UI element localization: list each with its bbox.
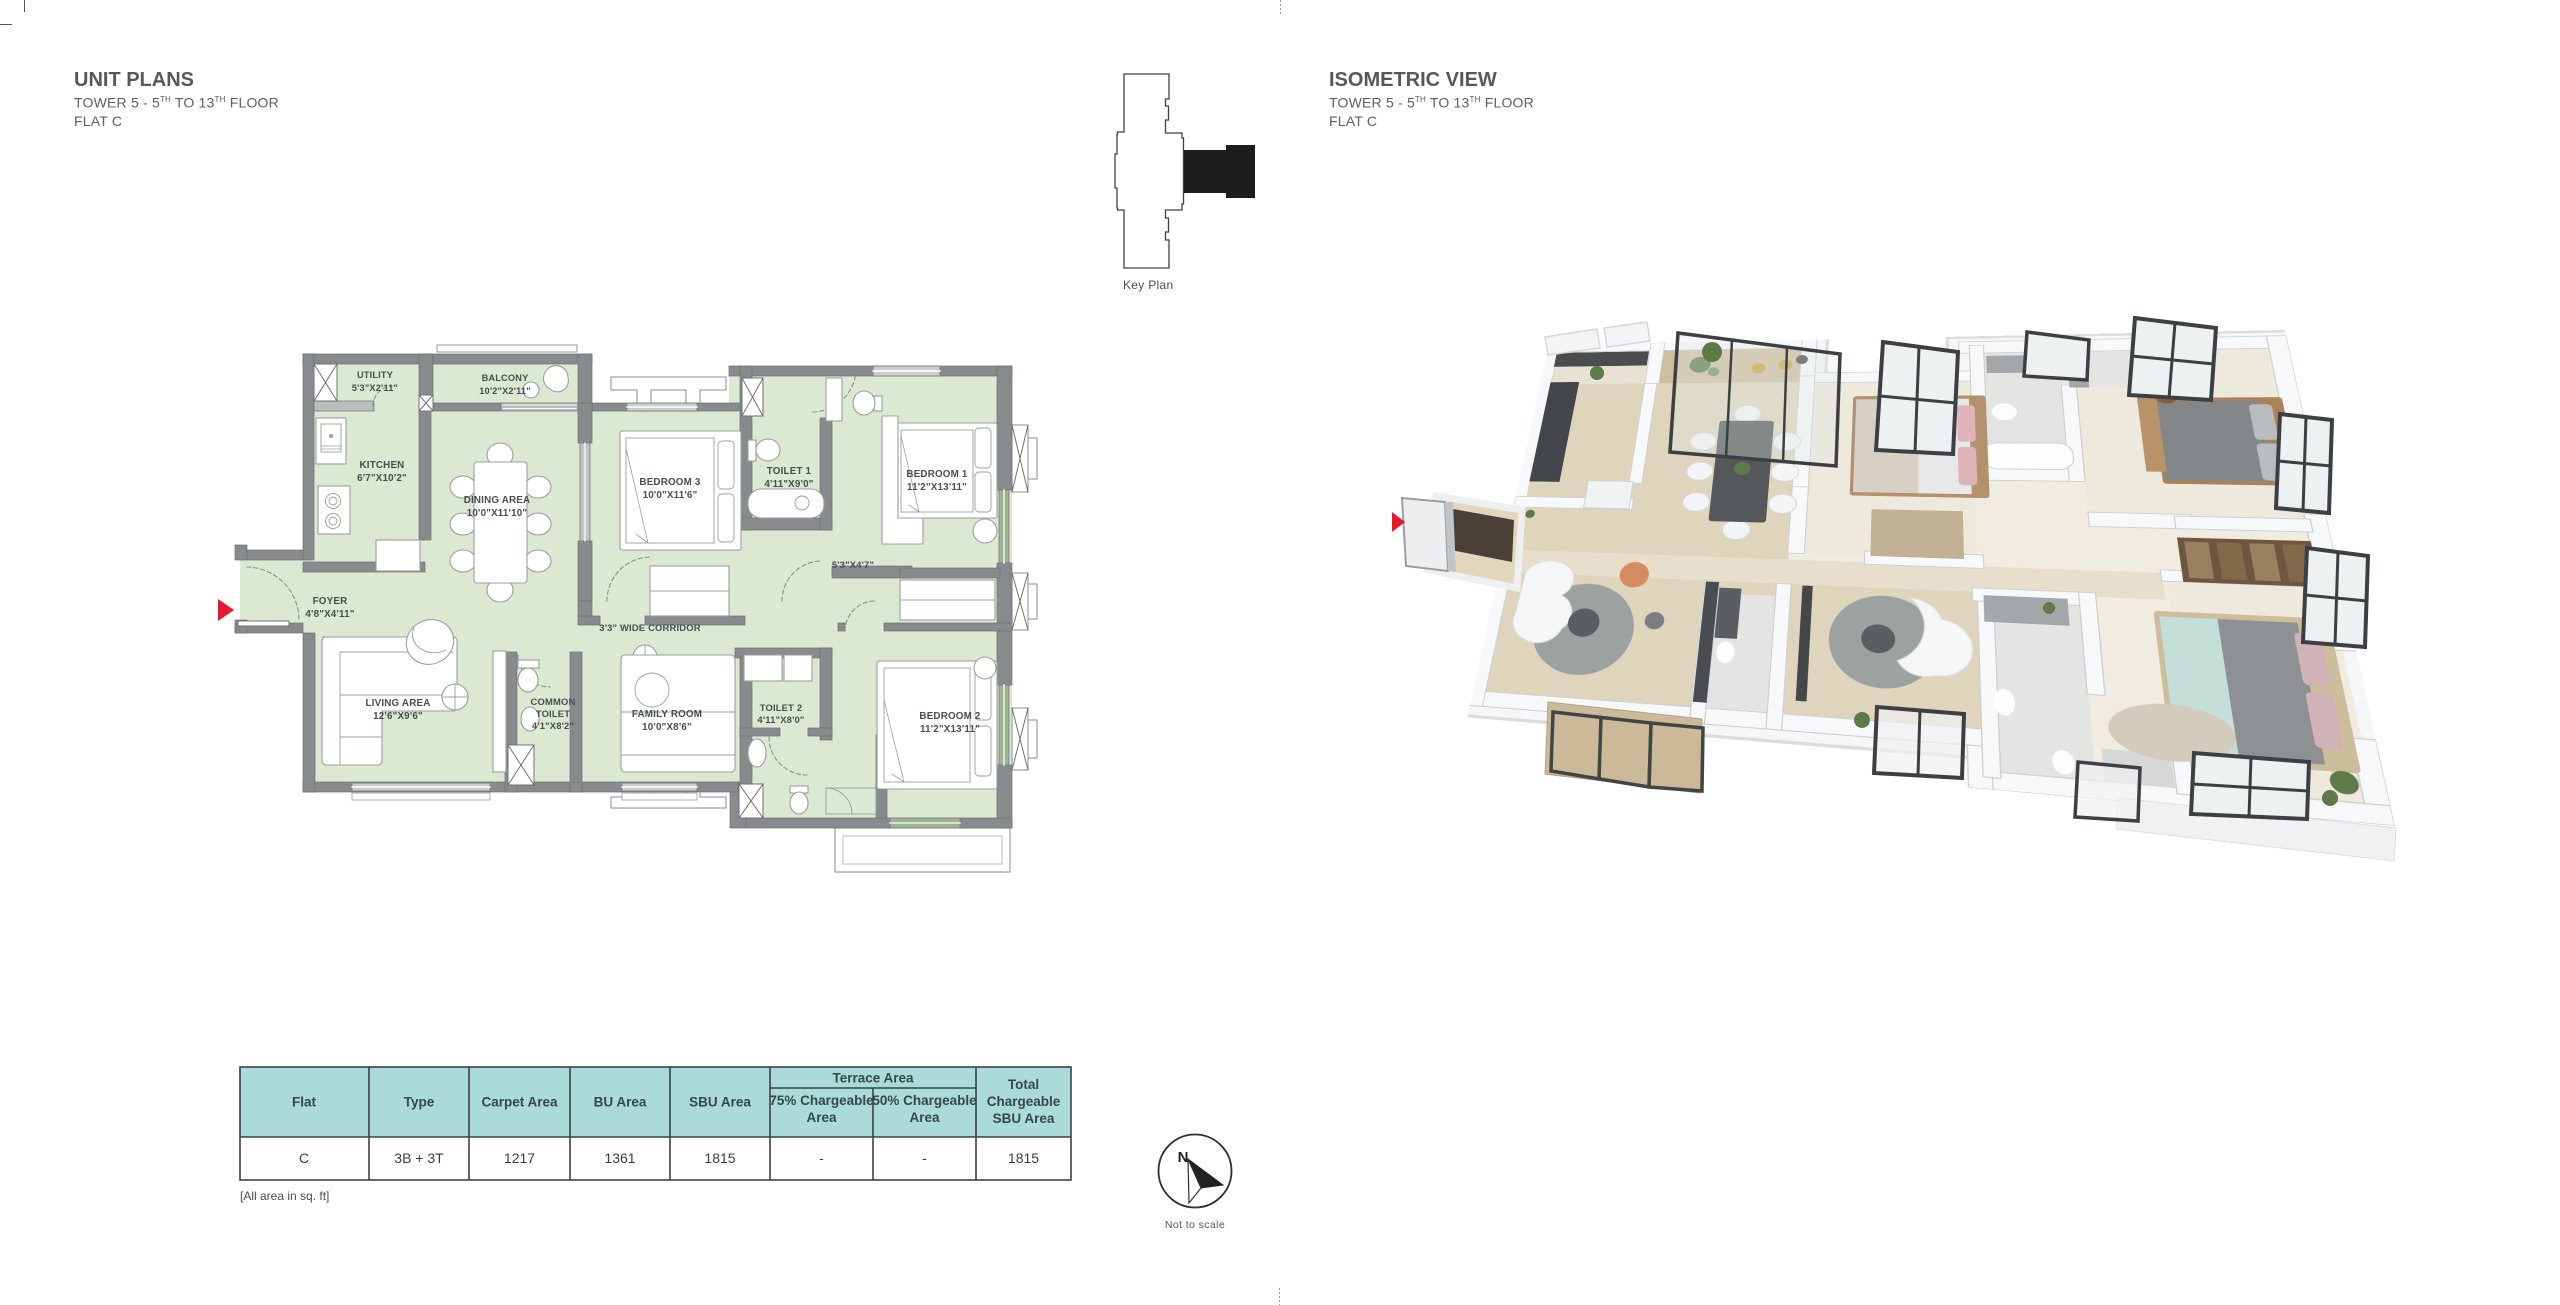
svg-text:11'2"X13'11": 11'2"X13'11": [907, 482, 967, 493]
svg-text:BEDROOM 2: BEDROOM 2: [919, 711, 980, 722]
svg-text:4'8"X4'11": 4'8"X4'11": [305, 609, 354, 620]
svg-text:BALCONY: BALCONY: [482, 373, 529, 383]
svg-text:1815: 1815: [1008, 1150, 1039, 1166]
svg-text:4'11"X9'0": 4'11"X9'0": [764, 479, 813, 490]
svg-text:SBU Area: SBU Area: [993, 1111, 1055, 1126]
svg-text:KITCHEN: KITCHEN: [360, 460, 405, 471]
svg-text:1217: 1217: [504, 1150, 535, 1166]
svg-text:Total: Total: [1008, 1077, 1039, 1092]
svg-text:12'6"X9'6": 12'6"X9'6": [373, 711, 423, 722]
svg-text:LIVING AREA: LIVING AREA: [366, 698, 431, 709]
svg-text:BEDROOM 1: BEDROOM 1: [906, 469, 967, 480]
svg-text:SBU Area: SBU Area: [689, 1095, 751, 1110]
svg-text:1815: 1815: [704, 1150, 735, 1166]
svg-text:4'1"X8'2": 4'1"X8'2": [532, 720, 574, 731]
svg-text:FOYER: FOYER: [313, 596, 348, 607]
svg-text:5'3"X2'11": 5'3"X2'11": [352, 383, 398, 393]
svg-text:DINING AREA: DINING AREA: [464, 495, 531, 506]
svg-text:FAMILY ROOM: FAMILY ROOM: [632, 709, 702, 720]
svg-text:4'11"X8'0": 4'11"X8'0": [757, 714, 804, 725]
svg-text:Area: Area: [909, 1110, 940, 1125]
svg-text:[All area in sq. ft]: [All area in sq. ft]: [240, 1189, 329, 1203]
svg-text:6'7"X10'2": 6'7"X10'2": [357, 473, 407, 484]
svg-text:Key Plan: Key Plan: [1123, 278, 1173, 292]
svg-text:75% Chargeable: 75% Chargeable: [769, 1093, 874, 1108]
svg-text:-: -: [922, 1150, 927, 1166]
svg-text:3B + 3T: 3B + 3T: [394, 1150, 444, 1166]
svg-text:TOILET 1: TOILET 1: [767, 466, 812, 477]
svg-text:N: N: [1178, 1149, 1189, 1166]
svg-text:TOILET 2: TOILET 2: [760, 702, 803, 713]
svg-text:Area: Area: [806, 1110, 837, 1125]
svg-text:10'0"X11'10": 10'0"X11'10": [467, 508, 527, 519]
svg-text:Flat: Flat: [292, 1095, 317, 1110]
svg-text:10'2"X2'11": 10'2"X2'11": [479, 386, 531, 396]
svg-text:10'0"X11'6": 10'0"X11'6": [643, 490, 698, 501]
svg-text:C: C: [299, 1150, 309, 1166]
svg-text:COMMON: COMMON: [531, 696, 576, 707]
svg-text:Terrace Area: Terrace Area: [832, 1071, 914, 1086]
svg-text:Type: Type: [404, 1095, 435, 1110]
svg-text:Chargeable: Chargeable: [987, 1094, 1061, 1109]
svg-text:3'3" WIDE CORRIDOR: 3'3" WIDE CORRIDOR: [599, 622, 700, 633]
svg-text:11'2"X13'11": 11'2"X13'11": [920, 724, 980, 735]
svg-text:Carpet Area: Carpet Area: [481, 1095, 558, 1110]
svg-text:50% Chargeable: 50% Chargeable: [872, 1093, 977, 1108]
svg-text:-: -: [819, 1150, 824, 1166]
svg-text:1361: 1361: [604, 1150, 635, 1166]
svg-text:UTILITY: UTILITY: [357, 370, 393, 380]
svg-text:TOILET: TOILET: [536, 708, 570, 719]
svg-text:BU Area: BU Area: [594, 1095, 647, 1110]
svg-text:5'3"X4'7": 5'3"X4'7": [832, 559, 874, 570]
svg-text:10'0"X8'6": 10'0"X8'6": [642, 722, 692, 733]
svg-text:BEDROOM 3: BEDROOM 3: [639, 477, 700, 488]
